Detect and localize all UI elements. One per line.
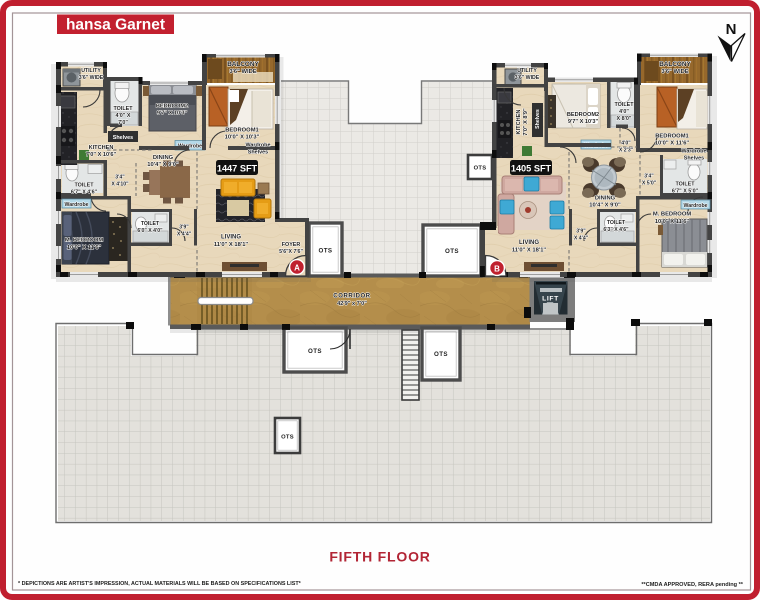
svg-text:OTS: OTS — [434, 351, 448, 358]
svg-text:10'0" X 10'3": 10'0" X 10'3" — [225, 135, 260, 141]
svg-text:X 8'0": X 8'0" — [617, 116, 632, 122]
svg-text:Shelves: Shelves — [535, 109, 541, 129]
svg-text:10'0" X 11'6": 10'0" X 11'6" — [67, 245, 102, 251]
svg-text:X 4'4": X 4'4" — [177, 232, 192, 238]
svg-text:3'6" WIDE: 3'6" WIDE — [515, 75, 540, 81]
svg-text:9'7" X 10'3": 9'7" X 10'3" — [157, 111, 188, 117]
svg-text:OTS: OTS — [445, 248, 459, 255]
svg-text:6'3" X 4'6": 6'3" X 4'6" — [603, 227, 629, 233]
svg-text:LIVING: LIVING — [519, 240, 539, 246]
svg-text:OTS: OTS — [281, 435, 294, 441]
svg-text:FIFTH FLOOR: FIFTH FLOOR — [329, 549, 430, 565]
svg-text:DINING: DINING — [595, 196, 616, 202]
svg-text:4'0" X: 4'0" X — [116, 113, 131, 119]
svg-text:4'0": 4'0" — [621, 141, 631, 147]
svg-text:3'4": 3'4" — [115, 175, 125, 181]
svg-text:1405 SFT: 1405 SFT — [511, 163, 552, 173]
svg-text:N: N — [726, 21, 737, 38]
svg-text:BALCONY: BALCONY — [227, 61, 259, 68]
svg-text:3'9": 3'9" — [179, 225, 189, 231]
svg-text:BEDROOM1: BEDROOM1 — [655, 134, 689, 140]
svg-text:Shelves: Shelves — [684, 156, 704, 162]
svg-text:BEDROOM2: BEDROOM2 — [567, 112, 599, 118]
svg-text:TOILET: TOILET — [74, 183, 94, 189]
svg-text:11'0" X 18'1": 11'0" X 18'1" — [512, 248, 547, 254]
svg-text:hansa Garnet: hansa Garnet — [66, 16, 165, 33]
svg-text:TOILET: TOILET — [614, 102, 634, 108]
svg-text:KITCHEN: KITCHEN — [89, 145, 114, 151]
svg-text:3'6" WIDE: 3'6" WIDE — [661, 69, 688, 75]
svg-text:* DEPICTIONS ARE ARTIST'S IMPR: * DEPICTIONS ARE ARTIST'S IMPRESSION, AC… — [18, 581, 302, 587]
svg-text:M. BEDROOM: M. BEDROOM — [65, 238, 103, 244]
svg-text:4'0": 4'0" — [619, 109, 629, 115]
svg-text:M. BEDROOM: M. BEDROOM — [653, 212, 691, 218]
svg-text:BEDROOM1: BEDROOM1 — [225, 128, 259, 134]
svg-text:X 4'4": X 4'4" — [574, 236, 589, 242]
svg-text:OTS: OTS — [308, 348, 322, 355]
svg-text:6'7" X 4'6": 6'7" X 4'6" — [71, 190, 98, 196]
svg-text:11'0" X 18'1": 11'0" X 18'1" — [214, 242, 249, 248]
svg-text:X 2'3": X 2'3" — [619, 148, 634, 154]
svg-text:FOYER: FOYER — [282, 242, 301, 248]
svg-text:10'0" X 11'6": 10'0" X 11'6" — [655, 219, 690, 225]
svg-text:UTILITY: UTILITY — [517, 68, 537, 74]
svg-text:DINING: DINING — [153, 155, 174, 161]
svg-text:BEDROOM2: BEDROOM2 — [156, 104, 188, 110]
svg-text:X 4'10": X 4'10" — [111, 182, 129, 188]
svg-text:Shelves: Shelves — [113, 135, 133, 141]
svg-text:KITCHEN: KITCHEN — [516, 110, 522, 135]
svg-text:3'6" WIDE: 3'6" WIDE — [229, 69, 256, 75]
svg-text:TOILET: TOILET — [113, 106, 133, 112]
svg-text:OTS: OTS — [319, 248, 333, 255]
svg-text:5'6"X 7'6": 5'6"X 7'6" — [279, 249, 303, 255]
svg-text:6'7" X 5'0": 6'7" X 5'0" — [672, 189, 699, 195]
svg-text:Wardrobe: Wardrobe — [64, 202, 88, 208]
svg-text:3'6" WIDE: 3'6" WIDE — [79, 75, 104, 81]
svg-text:7'0": 7'0" — [118, 120, 128, 126]
svg-text:LIVING: LIVING — [221, 235, 241, 241]
svg-text:10'4" X 9'0": 10'4" X 9'0" — [589, 203, 621, 209]
svg-text:B: B — [494, 265, 500, 274]
svg-text:LIFT: LIFT — [542, 296, 559, 303]
svg-text:3'4": 3'4" — [644, 174, 654, 180]
svg-text:3'9": 3'9" — [576, 229, 586, 235]
svg-text:UTILITY: UTILITY — [81, 68, 101, 74]
svg-text:9'7" X 10'3": 9'7" X 10'3" — [568, 119, 599, 125]
svg-text:CORRIDOR: CORRIDOR — [333, 294, 371, 300]
svg-text:OTS: OTS — [474, 166, 487, 172]
svg-text:10'0" X 11'6": 10'0" X 11'6" — [655, 141, 690, 147]
svg-text:**CMDA APPROVED, RERA pending: **CMDA APPROVED, RERA pending ** — [641, 582, 743, 588]
svg-text:Wardrobe: Wardrobe — [246, 143, 271, 149]
svg-text:7'0" X 8'9": 7'0" X 8'9" — [523, 108, 529, 136]
svg-text:6'0" X 4'0": 6'0" X 4'0" — [137, 228, 163, 234]
svg-text:10'4" X 9'0": 10'4" X 9'0" — [147, 162, 179, 168]
svg-text:Shelves: Shelves — [248, 150, 268, 156]
svg-text:TOILET: TOILET — [607, 220, 626, 226]
svg-text:42'9" x 7'0": 42'9" x 7'0" — [337, 301, 367, 307]
svg-text:TOILET: TOILET — [141, 221, 160, 227]
svg-text:Wardrobe: Wardrobe — [682, 149, 707, 155]
svg-text:X 5'0": X 5'0" — [642, 181, 657, 187]
svg-text:TOILET: TOILET — [675, 182, 695, 188]
svg-text:BALCONY: BALCONY — [659, 61, 691, 68]
svg-text:1447 SFT: 1447 SFT — [217, 163, 258, 173]
svg-text:7'0" X 10'6": 7'0" X 10'6" — [86, 152, 117, 158]
svg-text:A: A — [294, 264, 300, 273]
svg-text:Wardrobe: Wardrobe — [683, 203, 707, 209]
